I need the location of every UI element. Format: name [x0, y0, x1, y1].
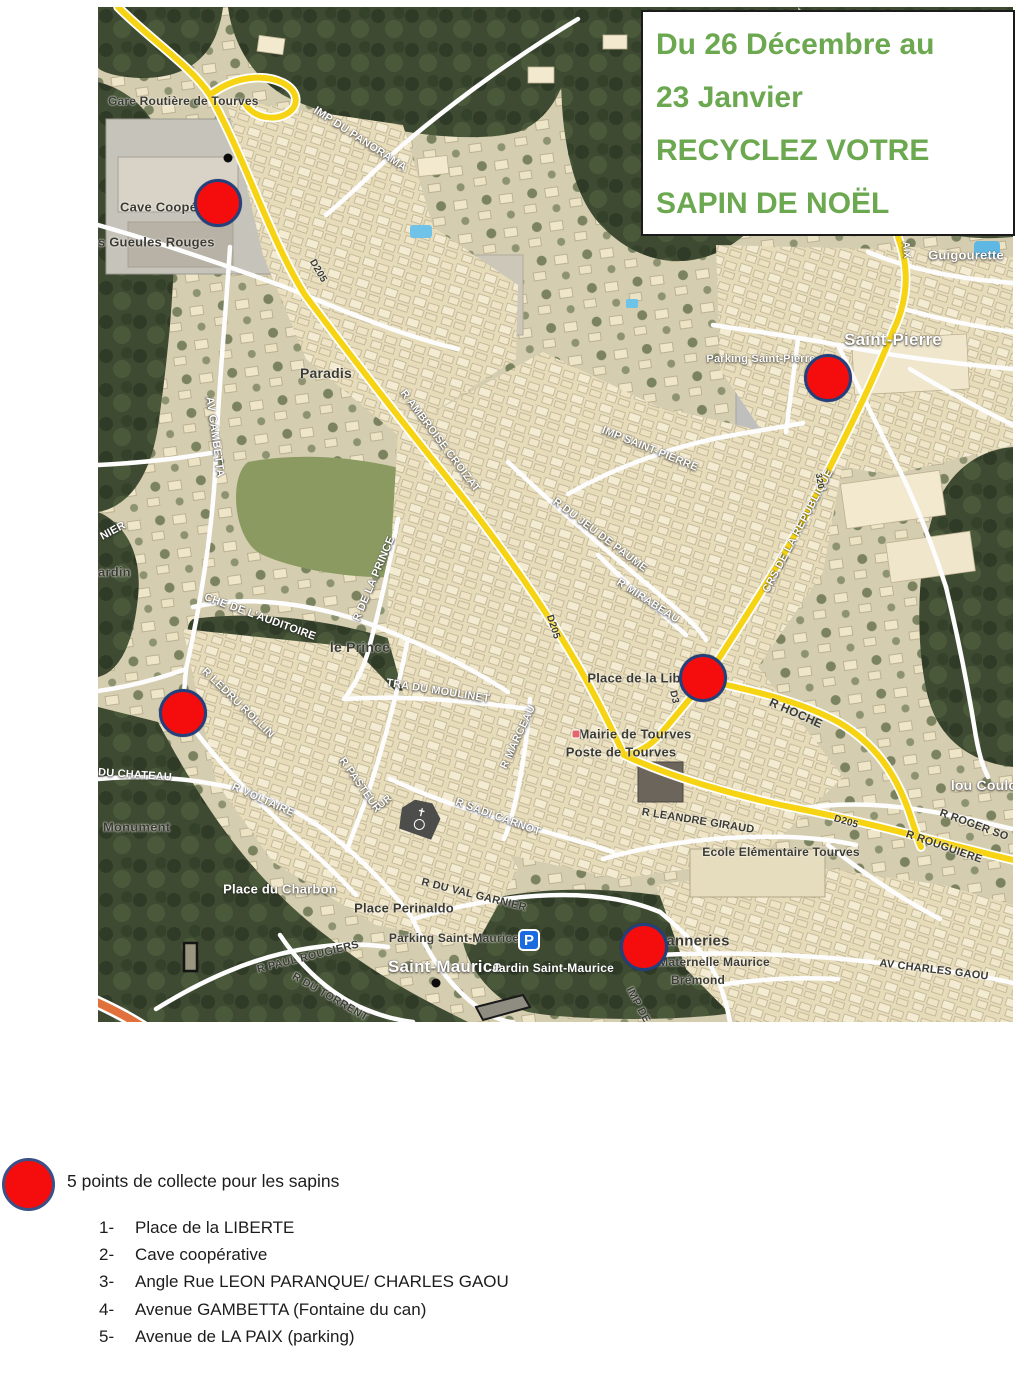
map-label: R MIRABEAU: [614, 576, 681, 625]
map-label: Place du Charbon: [223, 882, 337, 897]
map-label: Place Perinaldo: [354, 901, 454, 916]
map-label: Poste de Tourves: [566, 745, 677, 760]
legend-item-number: 4-: [99, 1300, 135, 1320]
title-line: SAPIN DE NOËL: [656, 177, 1013, 230]
map-label: Saint-Maurice: [388, 957, 502, 977]
map-label: R DU JEU DE PAUME: [550, 496, 649, 575]
map-label: R PAUL ROUGIERS: [256, 939, 360, 976]
legend-item-number: 1-: [99, 1218, 135, 1238]
collection-point-marker-2: [804, 354, 852, 402]
collection-point-marker-4: [159, 689, 207, 737]
map-label: NIER: [98, 519, 128, 542]
spot-dot: [224, 154, 233, 163]
map-label: R HOCHE: [767, 695, 825, 731]
map-label: s Gueules Rouges: [98, 235, 215, 250]
spot-dot: [432, 979, 441, 988]
map-label: IMP DU PANORAMA: [311, 104, 408, 173]
map-label: R DU TORRENT: [290, 970, 370, 1022]
map-label: Parking Saint-Pierre: [706, 353, 815, 365]
map-label: R AMBROISE CROIZAT: [398, 388, 483, 495]
map-label: Paradis: [300, 365, 352, 381]
legend-item-text: Cave coopérative: [135, 1245, 267, 1265]
parking-icon: P: [518, 929, 540, 951]
legend-item-text: Avenue de LA PAIX (parking): [135, 1327, 355, 1347]
church-icon: ✝: [397, 797, 444, 841]
map-label: CHE DE L'AUDITOIRE: [203, 591, 318, 643]
map-label: IMP DE: [624, 985, 653, 1022]
map-label: Place de la Lib: [587, 671, 680, 686]
collection-point-marker-1: [194, 179, 242, 227]
map-label: D3: [667, 689, 681, 704]
legend-item: 3-Angle Rue LEON PARANQUE/ CHARLES GAOU: [99, 1269, 509, 1296]
map-label: D205: [307, 258, 329, 285]
map-label: Gare Routière de Tourves: [108, 94, 259, 108]
map-label: R MARCEAU: [498, 703, 538, 771]
collection-point-marker-5: [620, 923, 668, 971]
map-label: Maternelle Maurice: [658, 955, 770, 969]
map-label: R DE LA PRINCE: [351, 535, 398, 623]
map-label: le Prince: [330, 639, 390, 655]
map-label: Mairie de Tourves: [579, 727, 692, 742]
map-label: R LEDRU ROLLIN: [199, 665, 276, 740]
legend-item-number: 2-: [99, 1245, 135, 1265]
legend-item: 1-Place de la LIBERTE: [99, 1214, 509, 1241]
map-label: Brémond: [671, 973, 725, 987]
collection-point-marker-3: [679, 654, 727, 702]
map-label: TRA DU MOULINET: [385, 677, 490, 705]
flyer-page: Gare Routière de TourvesCave Coopés Gueu…: [0, 0, 1024, 1390]
map-label: Ecole Elémentaire Tourves: [702, 845, 860, 859]
map-label: Parking Saint-Maurice: [389, 931, 519, 945]
legend-item-text: Angle Rue LEON PARANQUE/ CHARLES GAOU: [135, 1272, 509, 1292]
legend-item-text: Avenue GAMBETTA (Fontaine du can): [135, 1300, 426, 1320]
map-label: DU CHATEAU: [98, 766, 172, 783]
map-label: Jardin Saint-Maurice: [492, 961, 614, 975]
map-label: IMP SAINT-PIERRE: [600, 424, 700, 474]
townhall-icon: [572, 730, 581, 739]
map-label: R ROGER SO: [938, 807, 1010, 843]
map-label: R SADI CARNOT: [454, 796, 543, 838]
map-label: AIX: [900, 241, 912, 259]
map-label: Cave Coopé: [120, 200, 197, 215]
legend-list: 1-Place de la LIBERTE2-Cave coopérative3…: [99, 1214, 509, 1351]
legend-item: 5-Avenue de LA PAIX (parking): [99, 1324, 509, 1351]
map-label: ardin: [98, 565, 131, 580]
legend-collection-point-symbol: [2, 1158, 55, 1211]
map-label: Saint-Pierre: [844, 330, 942, 350]
map-label: R ROUGUIERE: [904, 828, 983, 865]
title-line: RECYCLEZ VOTRE: [656, 124, 1013, 177]
legend-item-text: Place de la LIBERTE: [135, 1218, 294, 1238]
legend-item: 4-Avenue GAMBETTA (Fontaine du can): [99, 1296, 509, 1323]
legend-item-number: 5-: [99, 1327, 135, 1347]
legend-item: 2-Cave coopérative: [99, 1241, 509, 1268]
map-label: R PASTEUR: [337, 755, 384, 815]
map-label: R LEANDRE GIRAUD: [641, 806, 755, 836]
map-label: Guigourette: [928, 248, 1004, 263]
legend-title: 5 points de collecte pour les sapins: [67, 1171, 339, 1192]
map-label: D205: [544, 614, 562, 641]
map-label: D205: [833, 813, 860, 830]
title-line: 23 Janvier: [656, 71, 1013, 124]
title-line: Du 26 Décembre au: [656, 18, 1013, 71]
map-label: AV GAMBETTA: [203, 396, 226, 478]
map-label: R VOLTAIRE: [230, 781, 296, 819]
map-label: lou Coulo: [951, 777, 1013, 793]
map-label: AV CHARLES GAOU: [879, 957, 989, 982]
map-label: anneries: [666, 933, 729, 950]
title-box: Du 26 Décembre au 23 Janvier RECYCLEZ VO…: [641, 10, 1015, 236]
map-label: Monument: [103, 820, 170, 835]
legend-item-number: 3-: [99, 1272, 135, 1292]
